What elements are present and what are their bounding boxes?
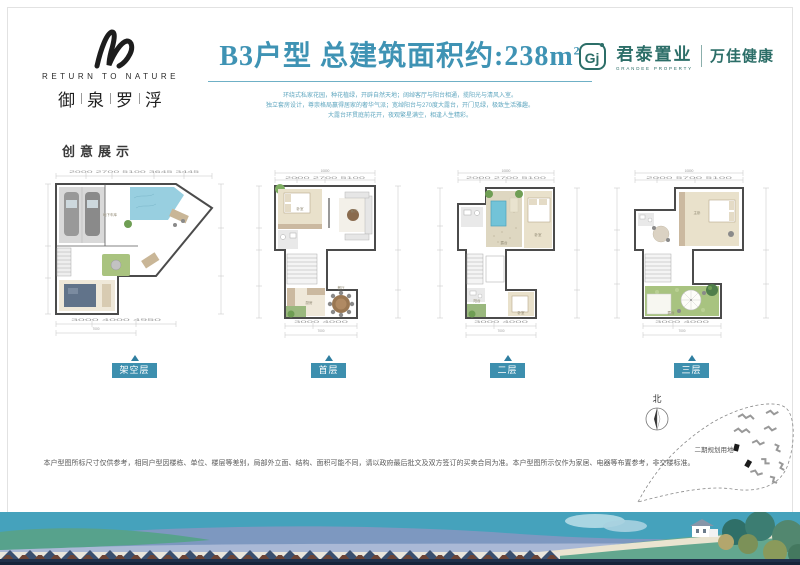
floorplan-column-third: 10800 2000 5700 5100 xyxy=(609,168,774,378)
compass-icon xyxy=(646,408,668,430)
floor-pointer-icon xyxy=(504,355,512,361)
brand-name-cn: 御泉罗浮 xyxy=(28,86,193,111)
developer-logos: Gj 君泰置业 GRANDEE PROPERTY 万佳健康 xyxy=(578,40,774,71)
floor-label-first: 首层 xyxy=(311,363,345,378)
developer-name-cn: 君泰置业 xyxy=(616,40,692,65)
svg-text:3000 4000 4950: 3000 4000 4950 xyxy=(71,318,162,322)
highlighted-building xyxy=(733,444,740,452)
brand-char: 泉 xyxy=(87,86,105,111)
parasol-icon xyxy=(681,290,701,310)
floor-pointer-icon xyxy=(325,355,333,361)
svg-text:3000 4000: 3000 4000 xyxy=(474,320,529,324)
phase2-label: 二期规划用地 xyxy=(695,445,735,454)
floorplan-row: 2000 2700 5100 3645 3445 xyxy=(42,168,774,378)
developer-name: 君泰置业 GRANDEE PROPERTY xyxy=(616,40,693,71)
brand-char: 御 xyxy=(58,86,76,111)
svg-text:卧室: 卧室 xyxy=(518,310,526,315)
svg-text:10800: 10800 xyxy=(685,169,694,173)
svg-text:地下车库: 地下车库 xyxy=(103,212,117,217)
divider xyxy=(81,93,82,104)
svg-text:卧室: 卧室 xyxy=(535,232,543,237)
svg-text:2000 2700 5100: 2000 2700 5100 xyxy=(466,176,547,180)
svg-text:阳台: 阳台 xyxy=(474,298,482,303)
brand-logo: RETURN TO NATURE 御泉罗浮 xyxy=(28,26,193,111)
page-title: B3户型 总建筑面积约:238m2 xyxy=(208,34,592,74)
section-title: 创意展示 xyxy=(62,141,134,160)
highlighted-building xyxy=(744,459,752,468)
floor-label-second: 二层 xyxy=(490,363,524,378)
svg-text:10800: 10800 xyxy=(321,169,330,173)
partner-name: 万佳健康 xyxy=(710,45,774,66)
brochure-page: RETURN TO NATURE 御泉罗浮 B3户型 总建筑面积约:238m2 … xyxy=(0,0,800,565)
header: B3户型 总建筑面积约:238m2 环绕式私家花园，种花植绿，开辟自然天地；阔绰… xyxy=(208,34,592,121)
landscape-illustration xyxy=(0,512,800,565)
svg-text:3000 4000: 3000 4000 xyxy=(294,320,349,324)
svg-text:餐厅: 餐厅 xyxy=(338,285,346,290)
brand-char: 浮 xyxy=(145,86,163,111)
svg-text:7000: 7000 xyxy=(92,327,99,331)
marketing-copy: 环绕式私家花园，种花植绿，开辟自然天地；阔绰客厅与阳台相通，揽阳光与清风入室。 … xyxy=(208,91,592,121)
svg-text:露台: 露台 xyxy=(501,240,509,245)
svg-text:3000 4000: 3000 4000 xyxy=(655,320,710,324)
svg-text:10800: 10800 xyxy=(502,169,511,173)
floor-label-stilt: 架空层 xyxy=(112,363,156,378)
svg-text:露台: 露台 xyxy=(668,310,676,315)
floorplan-column-first: 10800 2000 2700 5100 xyxy=(251,168,406,378)
divider xyxy=(139,93,140,104)
page-title-text: B3户型 总建筑面积约:238m xyxy=(219,41,573,72)
svg-text:2000 5700 5100: 2000 5700 5100 xyxy=(646,176,733,180)
divider xyxy=(110,93,111,104)
floorplan-first-floor: 10800 2000 2700 5100 xyxy=(251,168,406,348)
building-footprints xyxy=(734,410,784,484)
floor-pointer-icon xyxy=(131,355,139,361)
mountain-brush-icon xyxy=(78,26,144,70)
svg-text:7000: 7000 xyxy=(317,329,324,333)
brand-name-en: RETURN TO NATURE xyxy=(28,72,193,81)
copy-line: 环绕式私家花园，种花植绿，开辟自然天地；阔绰客厅与阳台相通，揽阳光与清风入室。 xyxy=(208,91,592,101)
gj-monogram-icon: Gj xyxy=(578,41,608,71)
floorplan-stilt-floor: 2000 2700 5100 3645 3445 xyxy=(42,168,227,348)
floorplan-column-second: 10800 2000 2700 5100 xyxy=(430,168,585,378)
copy-line: 大露台环贯庭前花开，夜观繁星满空，相逢人生精彩。 xyxy=(208,111,592,121)
floorplan-second-floor: 10800 2000 2700 5100 xyxy=(430,168,585,348)
floor-pointer-icon xyxy=(688,355,696,361)
floor-label-third: 三层 xyxy=(674,363,708,378)
svg-text:7000: 7000 xyxy=(497,329,504,333)
svg-text:2000 2700 5100 3645 3445: 2000 2700 5100 3645 3445 xyxy=(69,170,200,174)
divider xyxy=(701,45,702,67)
svg-text:2000 2700 5100: 2000 2700 5100 xyxy=(285,176,366,180)
site-plan: 北 二期规划用地 xyxy=(626,388,798,508)
svg-text:卧室: 卧室 xyxy=(297,206,305,211)
disclaimer-text: 本户型图所标尺寸仅供参考，相同户型因楼栋、单位、楼层等差别，局部外立面、结构、面… xyxy=(0,458,738,468)
developer-name-en: GRANDEE PROPERTY xyxy=(616,66,693,71)
svg-text:Gj: Gj xyxy=(585,50,600,66)
copy-line: 独立套房设计，尊崇格局赢得居家的奢华气派；宽绰阳台与270度大露台，开门见绿，极… xyxy=(208,101,592,111)
floorplan-column-stilt: 2000 2700 5100 3645 3445 xyxy=(42,168,227,378)
north-label: 北 xyxy=(652,394,661,404)
svg-text:7000: 7000 xyxy=(678,329,685,333)
svg-text:厨房: 厨房 xyxy=(306,300,314,305)
svg-text:主卧: 主卧 xyxy=(694,210,702,215)
floorplan-third-floor: 10800 2000 5700 5100 xyxy=(609,168,774,348)
title-underline xyxy=(208,81,592,82)
brand-char: 罗 xyxy=(116,86,134,111)
svg-text:客厅: 客厅 xyxy=(351,208,359,213)
